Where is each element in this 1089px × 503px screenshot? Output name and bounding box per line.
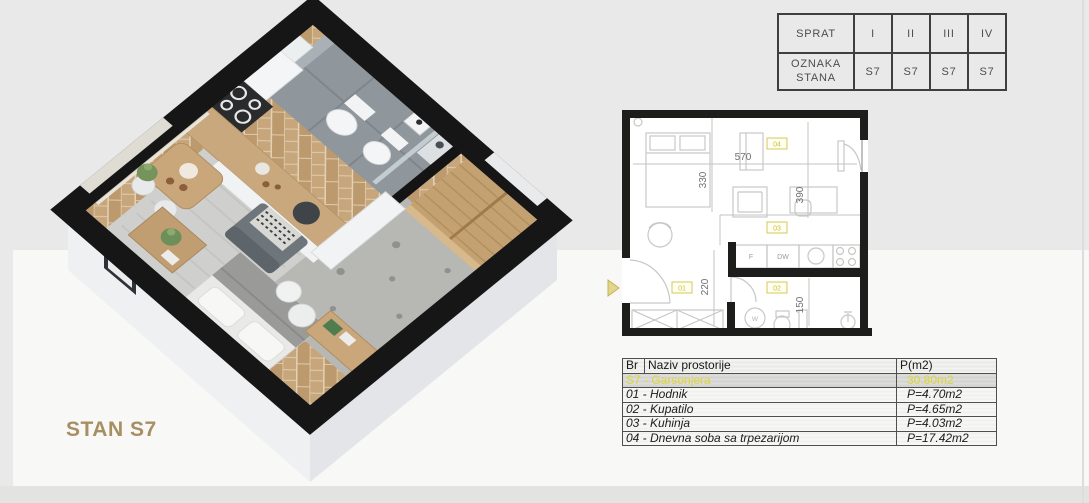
summary-name: S7 - Garsonjera: [623, 373, 897, 388]
floor-row: SPRAT I II III IV: [778, 14, 1006, 53]
table-row: 01 - Hodnik P=4.70m2: [623, 388, 997, 403]
room-name: 01 - Hodnik: [623, 388, 897, 403]
floor-cell: II: [892, 14, 930, 53]
floor-cell: I: [854, 14, 892, 53]
dim-left-upper: 330: [698, 171, 709, 188]
unit-cell: S7: [892, 53, 930, 90]
washer-label: W: [752, 316, 759, 323]
dim-top: 570: [735, 152, 752, 163]
summary-area: 30.80m2: [897, 373, 997, 388]
sprat-label: SPRAT: [778, 14, 854, 53]
room-label-kitchen: 03: [773, 226, 781, 233]
summary-row: S7 - Garsonjera 30.80m2: [623, 373, 997, 388]
floor-cell: III: [930, 14, 968, 53]
unit-cell: S7: [854, 53, 892, 90]
area-table-header: Br Naziv prostorije P(m2): [623, 359, 997, 374]
room-label-living: 04: [773, 142, 781, 149]
fridge-label: F: [749, 254, 753, 261]
entry-arrow-icon: [608, 280, 619, 296]
dishwasher-label: DW: [777, 254, 789, 261]
unit-row: OZNAKA STANA S7 S7 S7 S7: [778, 53, 1006, 90]
table-row: 04 - Dnevna soba sa trpezarijom P=17.42m…: [623, 431, 997, 446]
floor-unit-table: SPRAT I II III IV OZNAKA STANA S7 S7 S7 …: [777, 13, 1007, 91]
room-area-table: Br Naziv prostorije P(m2) S7 - Garsonjer…: [622, 358, 997, 446]
room-label-hallway: 01: [678, 286, 686, 293]
page: STAN S7 SPRAT I II III IV OZNAKA STANA S…: [0, 0, 1089, 503]
kitchen-partition: [728, 268, 868, 277]
room-label-bathroom: 02: [773, 286, 781, 293]
room-area: P=4.03m2: [897, 417, 997, 432]
room-name: 02 - Kupatilo: [623, 402, 897, 417]
apartment-title: STAN S7: [66, 418, 157, 442]
page-edge-line: [1082, 0, 1084, 503]
dim-left-lower: 220: [700, 278, 711, 295]
floor-cell: IV: [968, 14, 1006, 53]
kitchen-partition-stub: [728, 242, 736, 268]
header-name: Naziv prostorije: [645, 359, 897, 374]
room-area: P=4.65m2: [897, 402, 997, 417]
header-br: Br: [623, 359, 645, 374]
unit-cell: S7: [930, 53, 968, 90]
room-area: P=4.70m2: [897, 388, 997, 403]
oznaka-label: OZNAKA STANA: [778, 53, 854, 90]
room-name: 04 - Dnevna soba sa trpezarijom: [623, 431, 897, 446]
dim-right-upper: 390: [795, 186, 806, 203]
dim-right-lower: 150: [795, 296, 806, 313]
table-row: 03 - Kuhinja P=4.03m2: [623, 417, 997, 432]
unit-cell: S7: [968, 53, 1006, 90]
header-area: P(m2): [897, 359, 997, 374]
bathroom-partition: [727, 302, 735, 328]
apartment-2d-plan: F DW W 570 330 390 220 150 04 03 01 02: [605, 100, 885, 345]
table-row: 02 - Kupatilo P=4.65m2: [623, 402, 997, 417]
room-name: 03 - Kuhinja: [623, 417, 897, 432]
room-area: P=17.42m2: [897, 431, 997, 446]
